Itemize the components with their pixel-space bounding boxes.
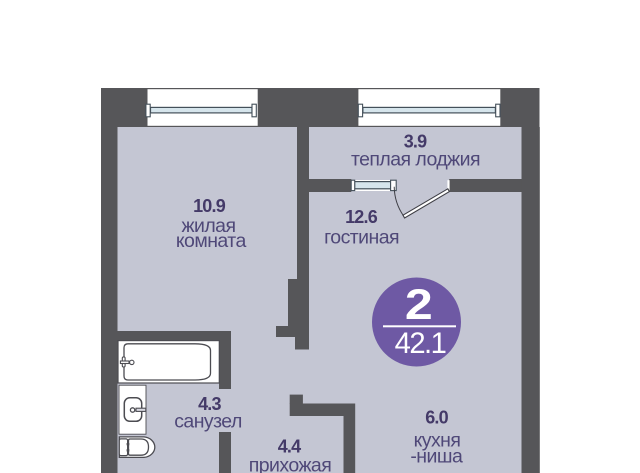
svg-text:2: 2 — [405, 280, 433, 328]
svg-text:6.0: 6.0 — [425, 408, 448, 428]
svg-text:10.9: 10.9 — [193, 196, 226, 216]
svg-text:гостиная: гостиная — [324, 227, 399, 249]
svg-text:42.1: 42.1 — [395, 328, 446, 360]
svg-text:санузел: санузел — [174, 411, 242, 433]
svg-text:комната: комната — [176, 230, 247, 252]
svg-text:12.6: 12.6 — [345, 207, 378, 227]
svg-text:-ниша: -ниша — [410, 445, 463, 467]
svg-text:теплая лоджия: теплая лоджия — [351, 148, 480, 170]
svg-text:прихожая: прихожая — [249, 454, 332, 473]
